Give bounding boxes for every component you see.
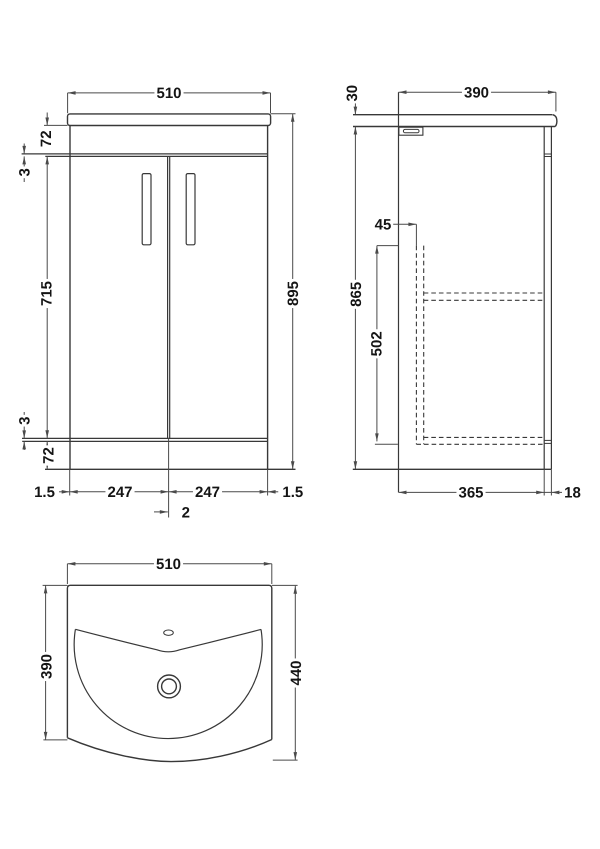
svg-text:502: 502 — [369, 331, 386, 356]
svg-text:45: 45 — [375, 217, 392, 234]
svg-text:247: 247 — [195, 484, 220, 501]
svg-text:2: 2 — [182, 505, 190, 522]
svg-text:72: 72 — [40, 447, 57, 464]
svg-text:3: 3 — [17, 168, 34, 176]
svg-text:865: 865 — [348, 282, 365, 307]
svg-text:365: 365 — [458, 485, 483, 502]
svg-text:510: 510 — [156, 556, 181, 573]
svg-text:72: 72 — [38, 130, 55, 147]
svg-text:247: 247 — [107, 484, 132, 501]
svg-text:440: 440 — [288, 660, 305, 685]
svg-text:715: 715 — [39, 281, 56, 306]
svg-text:390: 390 — [38, 654, 55, 679]
svg-text:30: 30 — [344, 85, 361, 102]
svg-text:1.5: 1.5 — [282, 484, 303, 501]
svg-text:510: 510 — [156, 85, 181, 102]
svg-text:390: 390 — [464, 85, 489, 102]
svg-text:1.5: 1.5 — [34, 484, 55, 501]
svg-text:18: 18 — [564, 485, 581, 502]
svg-text:3: 3 — [17, 417, 34, 425]
svg-text:895: 895 — [285, 281, 302, 306]
